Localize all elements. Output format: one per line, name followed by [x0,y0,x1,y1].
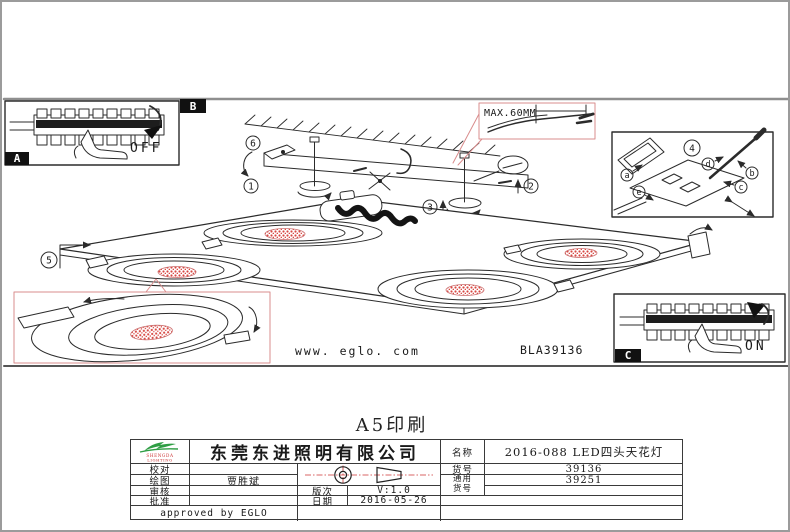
section-label-b: B [190,100,197,113]
tilt-head-callout [14,279,270,371]
generic-item-label: 通用 货号 [441,475,485,496]
empty-cell [485,486,683,496]
date-value: 2016-05-26 [348,496,441,506]
step-3-number: 3 [427,203,433,214]
check-label: 校对 [131,464,190,475]
approved-by: approved by EGLO [131,506,298,521]
terminal-c-label: c [738,183,743,193]
section-label-c: C [625,349,632,362]
approve-value [190,496,298,506]
step-5-number: 5 [46,256,52,267]
generic-item-label-line2: 货号 [453,485,472,495]
lamp-head [504,239,660,269]
step-2-number: 2 [528,182,534,193]
instruction-sheet-page: A B C OFF ON MAX.60MM www. eglo. com BLA… [0,0,790,532]
section-label-a: A [14,152,21,165]
company-name: 东莞东进照明有限公司 [190,440,441,464]
empty-cell [441,496,683,506]
date-label: 日期 [298,496,348,506]
title-block: SHENGDA LIGHTING 东莞东进照明有限公司 名称 2016-088 … [130,439,683,520]
terminal-a-label: a [624,171,629,181]
terminal-e-label: e [636,188,641,198]
max-length-label: MAX.60MM [484,108,536,119]
step-4-number: 4 [689,144,695,155]
review-value [190,486,298,496]
item-number-value: 39136 [485,464,683,475]
company-logo-icon: SHENGDA LIGHTING [132,441,189,463]
draft-value: 贾胜斌 [190,475,298,486]
review-label: 审核 [131,486,190,496]
item-number-label: 货号 [441,464,485,475]
drawing-code-label: BLA39136 [520,343,583,357]
step-6-number: 6 [250,139,256,150]
empty-cell [441,506,683,521]
version-value: V:1.0 [348,486,441,496]
generic-item-value: 39251 [485,475,683,486]
empty-cell [298,506,441,521]
logo-text-line2: LIGHTING [147,457,173,462]
check-value [190,464,298,475]
power-on-label: ON [745,339,767,354]
name-label: 名称 [441,440,485,464]
power-off-label: OFF [130,141,162,156]
product-name-value: 2016-088 LED四头天花灯 [485,440,683,464]
projection-symbol-icon [299,465,440,485]
version-label: 版次 [298,486,348,496]
print-format-note: A5印刷 [302,411,482,435]
projection-symbol [298,464,441,486]
draft-label: 绘图 [131,475,190,486]
lamp-head [86,254,260,286]
step-1-number: 1 [248,182,254,193]
company-logo: SHENGDA LIGHTING [131,440,190,464]
terminal-d-label: d [705,160,710,170]
website-label: www. eglo. com [295,344,420,358]
approve-label: 批准 [131,496,190,506]
terminal-b-label: b [749,169,754,179]
